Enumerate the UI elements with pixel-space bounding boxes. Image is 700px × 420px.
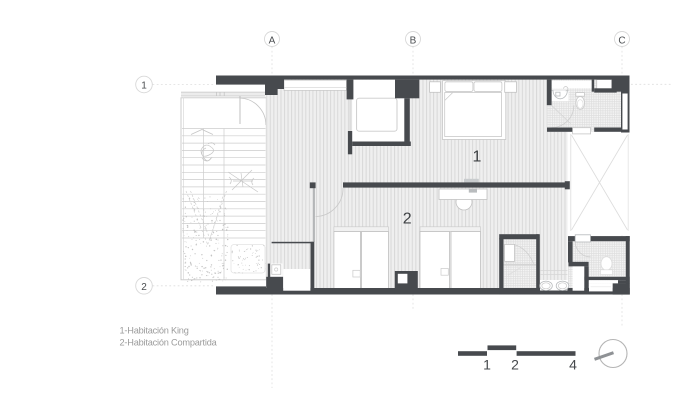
- svg-text:1: 1: [483, 357, 491, 373]
- svg-text:2: 2: [141, 282, 147, 293]
- svg-text:2: 2: [511, 357, 519, 373]
- svg-text:1: 1: [472, 149, 481, 166]
- svg-text:B: B: [410, 35, 417, 46]
- svg-text:A: A: [269, 35, 276, 46]
- svg-text:2-Habitación Compartida: 2-Habitación Compartida: [120, 337, 218, 347]
- svg-text:C: C: [618, 35, 625, 46]
- svg-text:2: 2: [403, 210, 412, 227]
- svg-text:1-Habitación King: 1-Habitación King: [120, 326, 189, 336]
- svg-text:1: 1: [141, 81, 147, 92]
- svg-text:4: 4: [569, 357, 577, 373]
